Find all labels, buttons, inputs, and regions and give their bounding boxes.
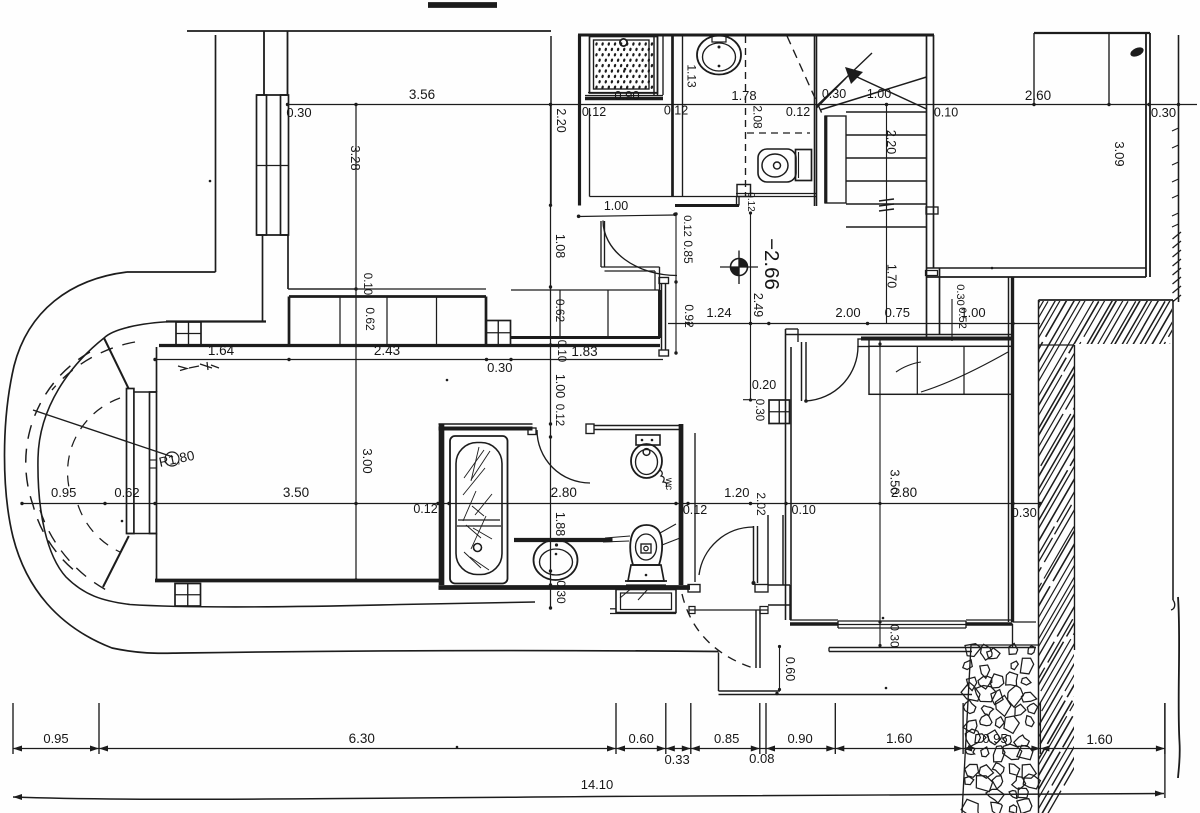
svg-text:14.10: 14.10 xyxy=(581,777,614,792)
svg-text:0.30: 0.30 xyxy=(887,624,901,648)
svg-text:0.62: 0.62 xyxy=(553,299,567,323)
svg-text:0.62: 0.62 xyxy=(363,307,377,331)
svg-text:2.60: 2.60 xyxy=(1025,88,1051,103)
svg-text:3.50: 3.50 xyxy=(887,469,902,494)
svg-text:0.10: 0.10 xyxy=(934,106,958,120)
svg-text:3.00: 3.00 xyxy=(360,448,375,473)
svg-text:−2.66: −2.66 xyxy=(760,238,783,290)
svg-text:1.70: 1.70 xyxy=(885,264,899,288)
svg-text:0.95: 0.95 xyxy=(982,731,1007,746)
svg-text:6.30: 6.30 xyxy=(349,731,375,746)
svg-text:wc: wc xyxy=(663,477,674,490)
svg-text:0.30: 0.30 xyxy=(753,399,765,421)
svg-text:3.50: 3.50 xyxy=(283,485,309,500)
svg-text:2.08: 2.08 xyxy=(751,105,765,129)
svg-text:3.28: 3.28 xyxy=(348,145,363,170)
svg-text:1.00: 1.00 xyxy=(553,374,567,398)
svg-text:2.80: 2.80 xyxy=(551,485,577,500)
svg-text:1.00: 1.00 xyxy=(867,87,891,101)
svg-text:2.49: 2.49 xyxy=(751,293,765,317)
svg-text:1.78: 1.78 xyxy=(731,88,756,103)
svg-text:0.90: 0.90 xyxy=(787,731,812,746)
svg-text:0.30: 0.30 xyxy=(822,87,846,101)
svg-text:0.10: 0.10 xyxy=(555,340,567,362)
svg-text:0.08: 0.08 xyxy=(749,751,774,766)
svg-text:2.02: 2.02 xyxy=(754,492,768,516)
svg-text:0.12: 0.12 xyxy=(582,105,606,119)
svg-text:1.88: 1.88 xyxy=(553,512,567,536)
svg-text:0.12: 0.12 xyxy=(413,502,437,516)
svg-text:0.12: 0.12 xyxy=(553,404,565,426)
svg-text:0.62: 0.62 xyxy=(114,485,139,500)
svg-text:3.09: 3.09 xyxy=(1112,141,1127,166)
svg-text:0.60: 0.60 xyxy=(783,657,797,681)
svg-text:0.95: 0.95 xyxy=(43,731,68,746)
svg-text:0.30: 0.30 xyxy=(1151,105,1176,120)
svg-text:0.20: 0.20 xyxy=(752,378,776,392)
svg-text:0.33: 0.33 xyxy=(664,752,689,767)
svg-text:1.83: 1.83 xyxy=(571,344,597,359)
svg-text:0.12: 0.12 xyxy=(745,192,756,212)
svg-text:1.24: 1.24 xyxy=(706,305,731,320)
svg-text:1.60: 1.60 xyxy=(1086,732,1112,747)
svg-text:0.10: 0.10 xyxy=(361,273,373,295)
svg-text:0.90: 0.90 xyxy=(614,88,639,103)
svg-text:0.30: 0.30 xyxy=(286,105,311,120)
svg-text:2.43: 2.43 xyxy=(374,343,400,358)
svg-text:0.12: 0.12 xyxy=(683,503,707,517)
svg-text:0.30: 0.30 xyxy=(487,360,512,375)
svg-text:0.10: 0.10 xyxy=(792,503,816,517)
svg-text:1.60: 1.60 xyxy=(886,731,912,746)
svg-text:0.52: 0.52 xyxy=(956,307,968,328)
svg-text:1.00: 1.00 xyxy=(604,199,628,213)
svg-text:0.30: 0.30 xyxy=(554,580,568,604)
svg-text:0.95: 0.95 xyxy=(51,485,76,500)
svg-text:0.30: 0.30 xyxy=(1012,505,1037,520)
svg-text:0.30: 0.30 xyxy=(954,284,966,305)
svg-text:0.75: 0.75 xyxy=(885,305,910,320)
svg-text:2.00: 2.00 xyxy=(835,305,860,320)
svg-text:2.20: 2.20 xyxy=(554,108,568,132)
svg-text:2.20: 2.20 xyxy=(884,130,898,154)
svg-text:1.64: 1.64 xyxy=(208,343,235,358)
svg-text:0.12: 0.12 xyxy=(786,105,810,119)
svg-text:1.20: 1.20 xyxy=(724,485,749,500)
svg-text:1.08: 1.08 xyxy=(553,234,567,258)
svg-text:1.13: 1.13 xyxy=(685,64,699,88)
svg-text:0.85: 0.85 xyxy=(714,731,739,746)
svg-text:0.85: 0.85 xyxy=(681,240,695,264)
svg-text:0.12: 0.12 xyxy=(664,104,688,118)
svg-text:0.12: 0.12 xyxy=(681,215,693,236)
svg-text:0.60: 0.60 xyxy=(629,731,654,746)
svg-text:3.56: 3.56 xyxy=(409,87,435,102)
